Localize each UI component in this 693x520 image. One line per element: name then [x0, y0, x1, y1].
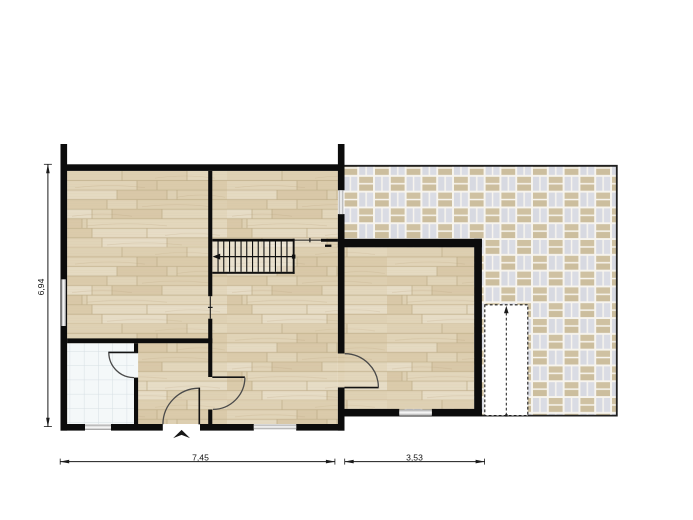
svg-text:3,53: 3,53	[406, 453, 423, 463]
svg-text:7,45: 7,45	[192, 453, 209, 463]
svg-text:6,94: 6,94	[36, 278, 46, 295]
